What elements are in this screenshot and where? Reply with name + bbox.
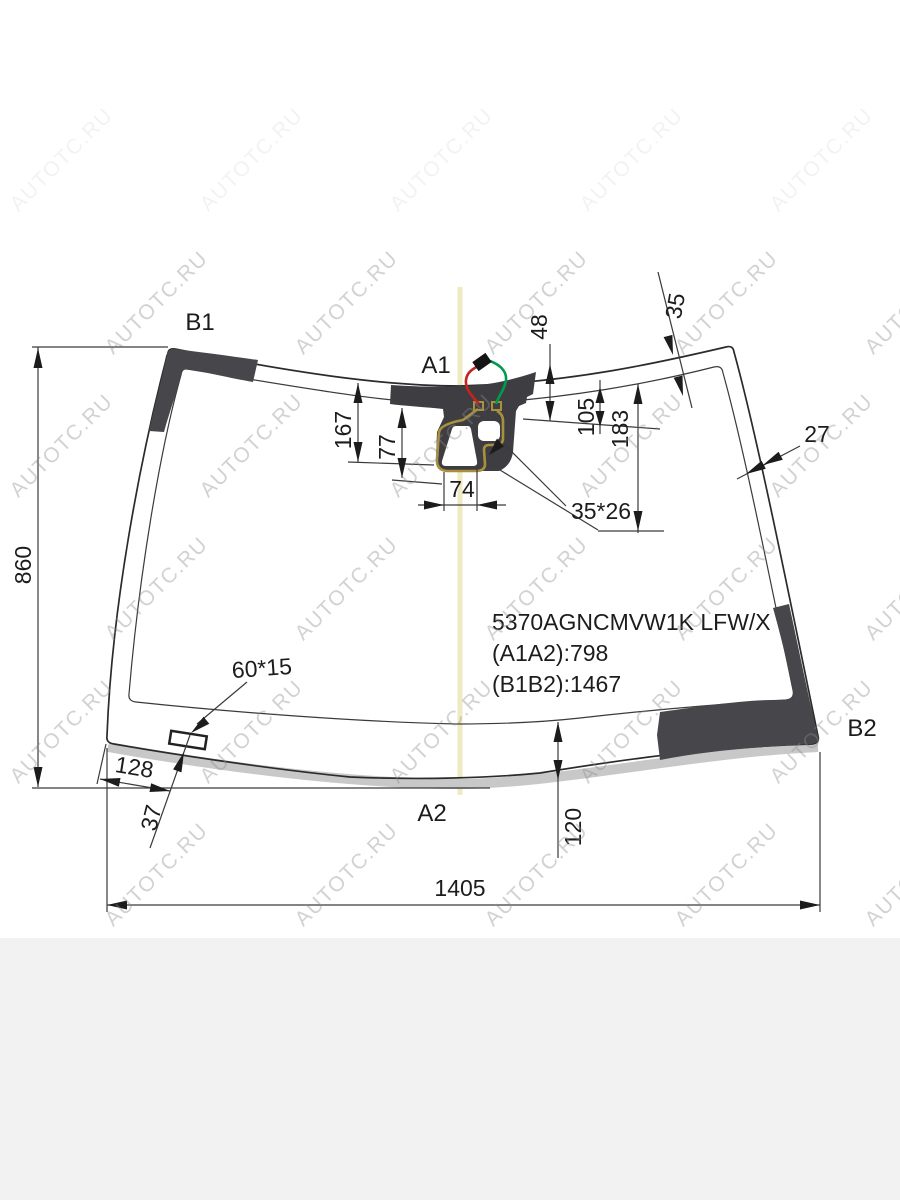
dim-35-arrow-1 xyxy=(664,335,673,355)
dim-27-text: 27 xyxy=(804,421,830,447)
dim-48-text: 48 xyxy=(526,314,552,340)
dim-860-arrow-bottom xyxy=(34,767,43,787)
dim-48-arrow-bottom xyxy=(546,401,555,421)
dim-60x15-text: 60*15 xyxy=(231,653,293,683)
dim-74-arrow-right xyxy=(477,501,497,510)
dim-860-arrow-top xyxy=(34,348,43,368)
dim-1405-text: 1405 xyxy=(434,875,485,901)
dim-183-arrow-top xyxy=(634,384,643,404)
dim-35x26-leader xyxy=(503,443,566,506)
dim-183-arrow-bottom xyxy=(634,511,643,531)
dim-35x26-text: 35*26 xyxy=(571,498,631,524)
dim-74-text: 74 xyxy=(449,476,475,502)
dim-120-arrow-top xyxy=(554,722,563,742)
windshield-technical-drawing: 860 1405 48 105 183 167 xyxy=(0,0,900,938)
dim-167-ext xyxy=(348,462,434,465)
dim-167-arrow-top xyxy=(354,383,363,403)
dim-35-arrow-2 xyxy=(674,376,683,397)
part-code: 5370AGNCMVW1K LFW/X xyxy=(492,609,771,635)
dim-77-text: 77 xyxy=(374,434,400,460)
dim-77-ext xyxy=(392,480,442,484)
dim-120-text: 120 xyxy=(560,808,586,846)
dim-1405-arrow-left xyxy=(107,901,127,910)
dim-60x15-leader xyxy=(197,682,247,724)
dim-183-text: 183 xyxy=(607,410,633,448)
label-a2: A2 xyxy=(417,800,446,827)
dim-1405-arrow-right xyxy=(800,901,820,910)
dim-74-arrow-left xyxy=(424,501,444,510)
dim-37-text: 37 xyxy=(135,802,166,833)
sensor-aperture xyxy=(478,421,500,441)
dim-128-arrow-left xyxy=(100,778,121,787)
dim-60x15-arrow xyxy=(191,717,209,733)
dim-860-text: 860 xyxy=(10,546,36,584)
dim-105-text: 105 xyxy=(573,398,599,436)
label-b1: B1 xyxy=(185,309,214,336)
label-a1: A1 xyxy=(421,352,450,379)
dim-35-text: 35 xyxy=(660,291,690,321)
dim-27-arrow-1 xyxy=(763,452,783,465)
part-a1a2: (A1A2):798 xyxy=(492,640,608,666)
windshield-diagram-page: 860 1405 48 105 183 167 xyxy=(0,0,900,1200)
dim-35-line xyxy=(658,272,692,408)
footer-blank-area xyxy=(0,938,900,1200)
dim-77-arrow-top xyxy=(398,408,407,428)
dim-128-ext xyxy=(97,744,106,784)
dim-167-text: 167 xyxy=(330,411,356,449)
part-b1b2: (B1B2):1467 xyxy=(492,671,621,697)
dim-77-arrow-bottom xyxy=(398,458,407,478)
label-b2: B2 xyxy=(847,715,876,742)
dim-48-arrow-top xyxy=(546,364,555,384)
